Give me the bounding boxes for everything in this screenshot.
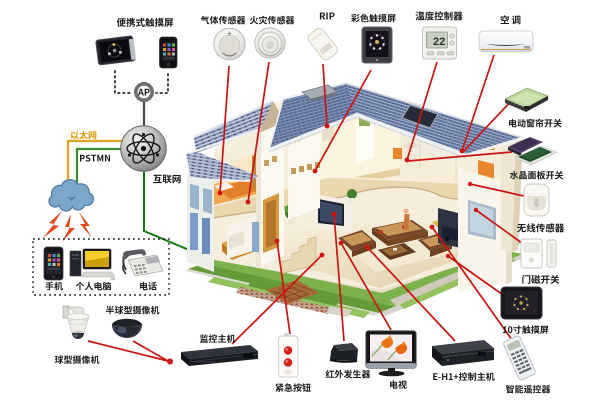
svg-text:22: 22 — [433, 36, 445, 48]
